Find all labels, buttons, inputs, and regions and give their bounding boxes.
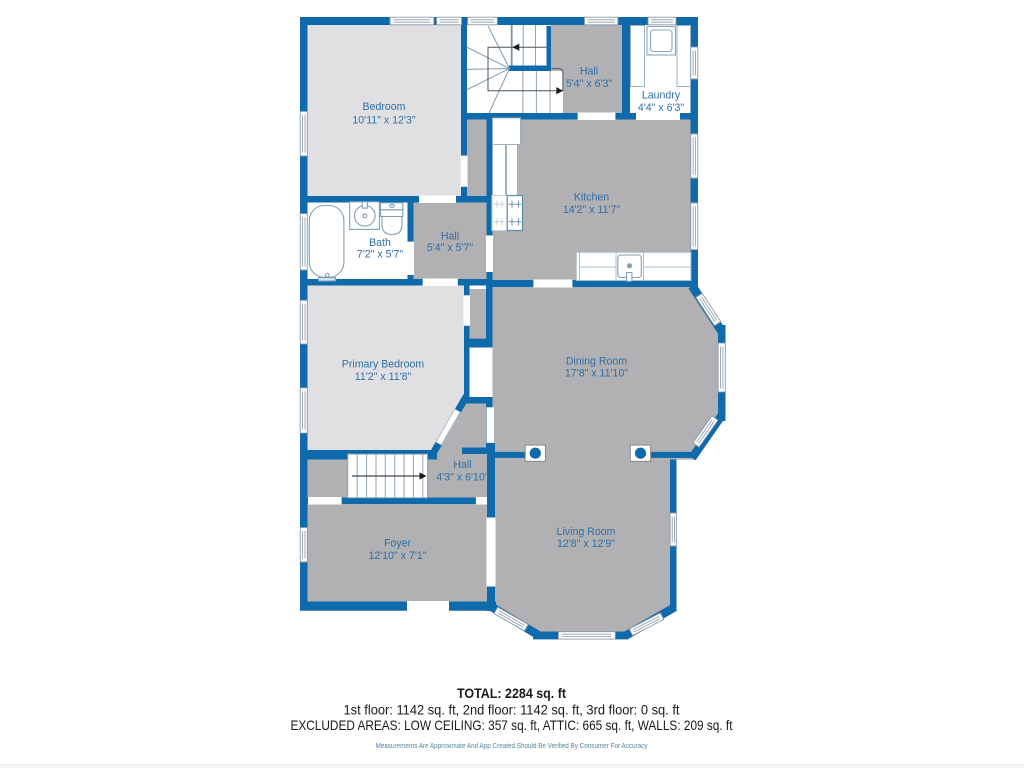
svg-text:TOTAL: 2284 sq. ft: TOTAL: 2284 sq. ft <box>457 685 566 701</box>
svg-text:12'8" x 12'9": 12'8" x 12'9" <box>557 538 615 550</box>
svg-text:17'8" x 11'10": 17'8" x 11'10" <box>565 368 628 380</box>
svg-text:Hall: Hall <box>453 459 471 471</box>
svg-text:14'2" x 11'7": 14'2" x 11'7" <box>563 204 621 216</box>
svg-text:Hall: Hall <box>580 66 598 78</box>
svg-text:7'2" x 5'7": 7'2" x 5'7" <box>357 249 404 261</box>
svg-text:12'10" x 7'1": 12'10" x 7'1" <box>368 550 426 562</box>
svg-text:5'4" x 6'3": 5'4" x 6'3" <box>566 78 613 90</box>
svg-text:11'2" x 11'8": 11'2" x 11'8" <box>355 371 412 383</box>
svg-text:5'4" x 5'7": 5'4" x 5'7" <box>427 242 474 254</box>
svg-text:Kitchen: Kitchen <box>574 192 609 204</box>
svg-text:Bedroom: Bedroom <box>363 101 406 113</box>
svg-text:Bath: Bath <box>369 237 391 249</box>
svg-text:Foyer: Foyer <box>384 538 412 550</box>
svg-text:1st floor: 1142 sq. ft, 2nd fl: 1st floor: 1142 sq. ft, 2nd floor: 1142 … <box>344 701 680 717</box>
svg-text:Measurements Are Approximate A: Measurements Are Approximate And App Cre… <box>376 741 648 750</box>
svg-text:10'11" x 12'3": 10'11" x 12'3" <box>352 115 415 127</box>
svg-text:Dining Room: Dining Room <box>566 356 627 368</box>
svg-text:Laundry: Laundry <box>642 90 681 102</box>
svg-text:Hall: Hall <box>441 231 459 243</box>
svg-text:Living Room: Living Room <box>557 526 616 538</box>
svg-text:Primary Bedroom: Primary Bedroom <box>342 359 425 371</box>
svg-text:4'3" x 6'10": 4'3" x 6'10" <box>436 472 488 484</box>
svg-text:EXCLUDED AREAS: LOW CEILING: 3: EXCLUDED AREAS: LOW CEILING: 357 sq. ft,… <box>291 717 733 733</box>
svg-text:4'4" x 6'3": 4'4" x 6'3" <box>638 102 685 114</box>
